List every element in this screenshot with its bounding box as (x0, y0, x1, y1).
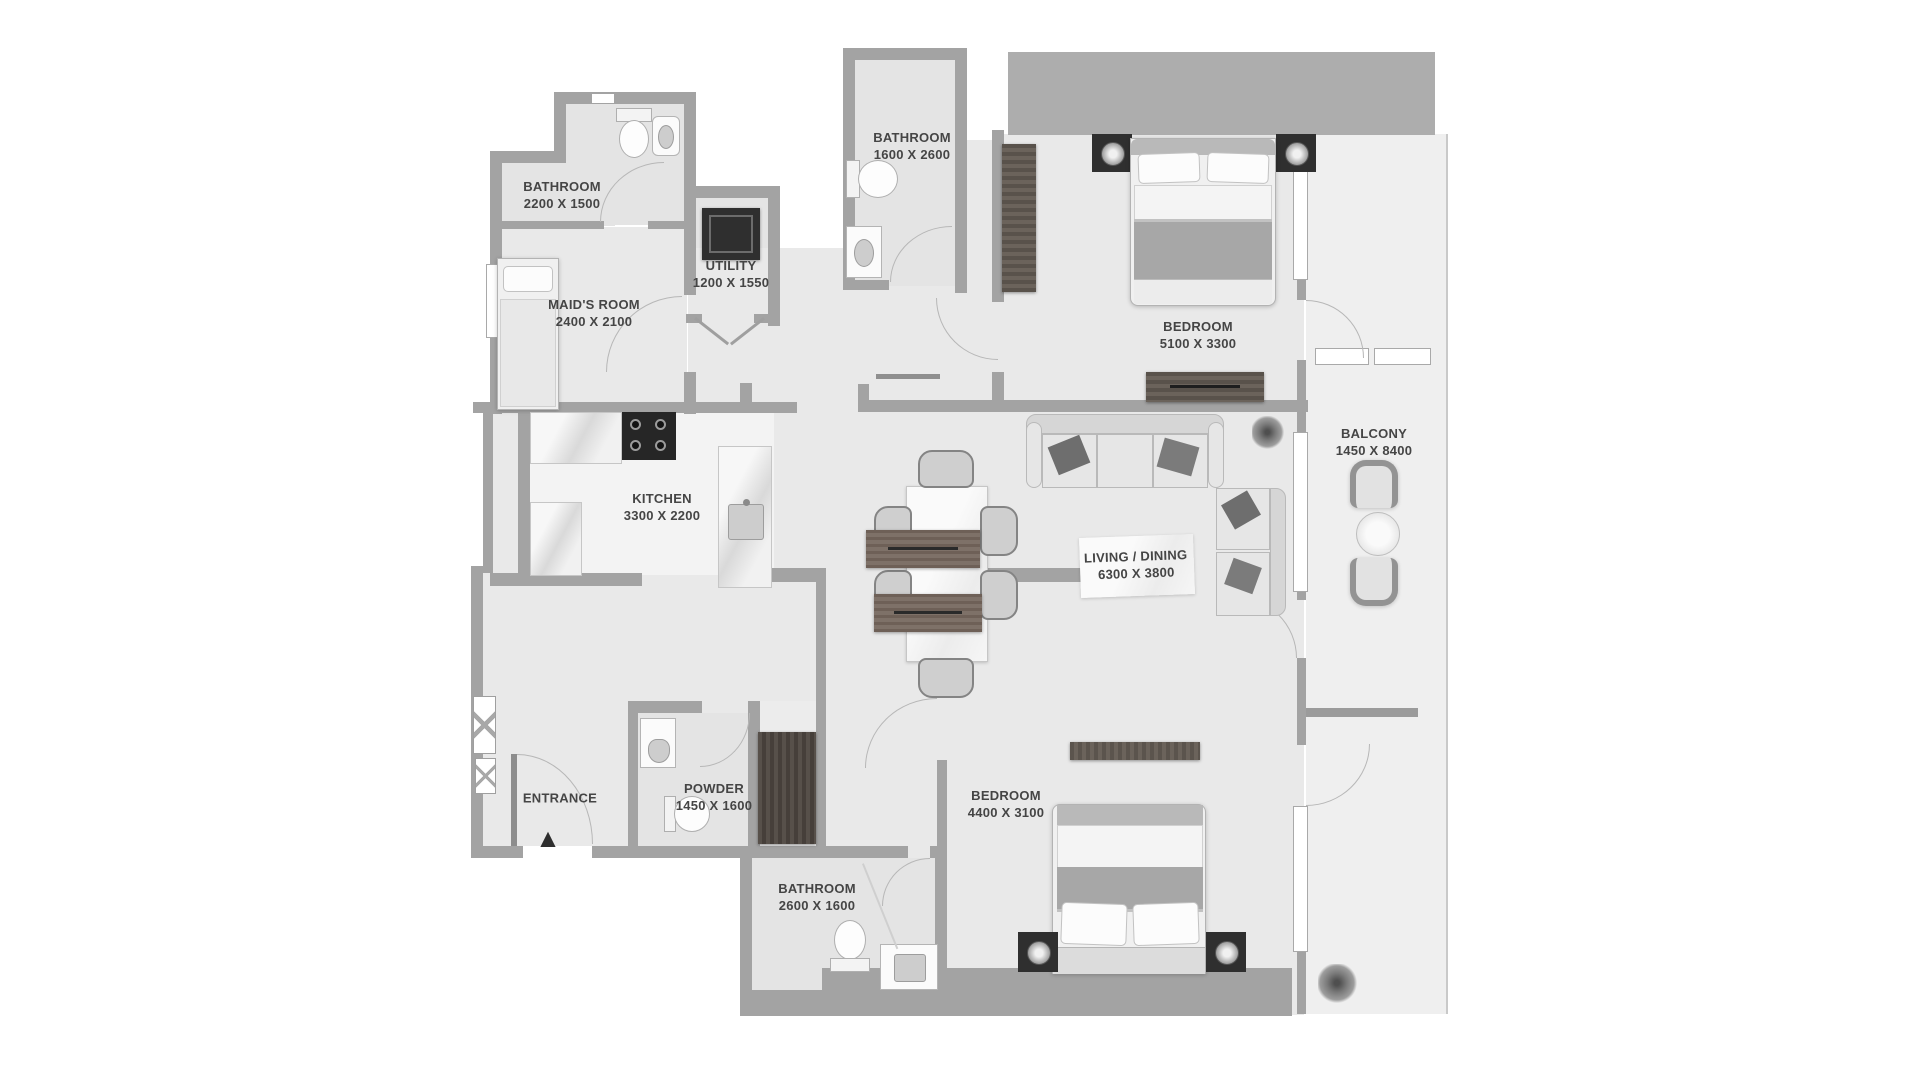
nightstand (1276, 134, 1316, 172)
bench (1070, 742, 1200, 760)
wall (816, 568, 826, 710)
wall (768, 186, 780, 326)
shaft-box (473, 696, 496, 754)
counter (530, 502, 582, 576)
nightstand (1092, 134, 1132, 172)
wardrobe (758, 732, 816, 844)
wall (518, 413, 530, 575)
dining-chair (980, 570, 1018, 620)
balcony-chair (1350, 460, 1398, 508)
wall (955, 48, 967, 293)
single-bed (497, 258, 559, 410)
wall (1297, 412, 1306, 432)
dining-chair (918, 450, 974, 488)
vanity (846, 226, 882, 278)
wall (628, 701, 638, 858)
console-line (876, 374, 940, 379)
wall (554, 92, 696, 104)
building-core-block (1008, 52, 1435, 135)
wall (740, 846, 752, 994)
wall (858, 384, 869, 412)
tv-console (1146, 372, 1264, 402)
dresser (874, 594, 982, 632)
window (1293, 806, 1308, 952)
wall (1297, 658, 1306, 718)
wardrobe (1002, 144, 1036, 292)
wall (740, 383, 752, 413)
dresser (866, 530, 980, 568)
wall (483, 413, 493, 573)
room-label-utility: UTILITY1200 X 1550 (693, 257, 769, 291)
room-label-bedroom2: BEDROOM4400 X 3100 (968, 787, 1044, 821)
counter (530, 412, 622, 464)
balcony-chair (1350, 558, 1398, 606)
wall (843, 48, 967, 60)
vanity (880, 944, 938, 990)
wall (992, 372, 1004, 412)
room-label-bathroom3: BATHROOM2600 X 1600 (778, 880, 856, 914)
washbasin (652, 116, 680, 156)
washer (702, 208, 760, 260)
double-bed (1052, 804, 1206, 974)
wall (628, 701, 702, 713)
plant (1318, 964, 1360, 1006)
wall (1297, 952, 1306, 1014)
wall (816, 698, 826, 858)
wall (748, 701, 760, 713)
wall (502, 221, 604, 229)
floor-plan: ▲ BATHROOM2200 X 1500 MAID'S ROOM2400 X … (0, 0, 1920, 1080)
double-bed (1130, 138, 1276, 306)
balcony-divider (1304, 708, 1418, 717)
kitchen-sink (728, 504, 764, 540)
wall (471, 846, 523, 858)
room-label-entrance: ENTRANCE (523, 789, 597, 806)
wall (740, 846, 908, 858)
wall (684, 92, 696, 198)
window (1293, 432, 1308, 592)
stove (622, 412, 676, 460)
room-label-balcony: BALCONY1450 X 8400 (1336, 425, 1412, 459)
wall (1297, 718, 1306, 745)
wall (684, 186, 780, 198)
room-label-maids-room: MAID'S ROOM2400 X 2100 (548, 296, 640, 330)
wall (843, 280, 889, 290)
wall (1297, 360, 1306, 412)
room-label-kitchen: KITCHEN3300 X 2200 (624, 490, 700, 524)
wall (1297, 592, 1306, 600)
balcony-round-table (1356, 512, 1400, 556)
nightstand (1206, 932, 1246, 972)
balcony-planter (1374, 348, 1431, 365)
plant (1252, 416, 1286, 452)
room-label-bathroom2: BATHROOM1600 X 2600 (873, 129, 951, 163)
dining-chair (918, 658, 974, 698)
room-label-living-dining: LIVING / DINING6300 X 3800 (1084, 546, 1189, 584)
wall (1297, 280, 1306, 300)
washbasin (640, 718, 676, 768)
window (592, 94, 614, 103)
wall (937, 760, 947, 860)
shaft-box (475, 758, 496, 794)
room-label-powder: POWDER1450 X 1600 (676, 780, 752, 814)
dining-chair (980, 506, 1018, 556)
room-label-bedroom1: BEDROOM5100 X 3300 (1160, 318, 1236, 352)
room-label-bathroom1: BATHROOM2200 X 1500 (523, 178, 601, 212)
dining-table (906, 486, 988, 662)
entrance-marker: ▲ (535, 825, 561, 851)
nightstand (1018, 932, 1058, 972)
